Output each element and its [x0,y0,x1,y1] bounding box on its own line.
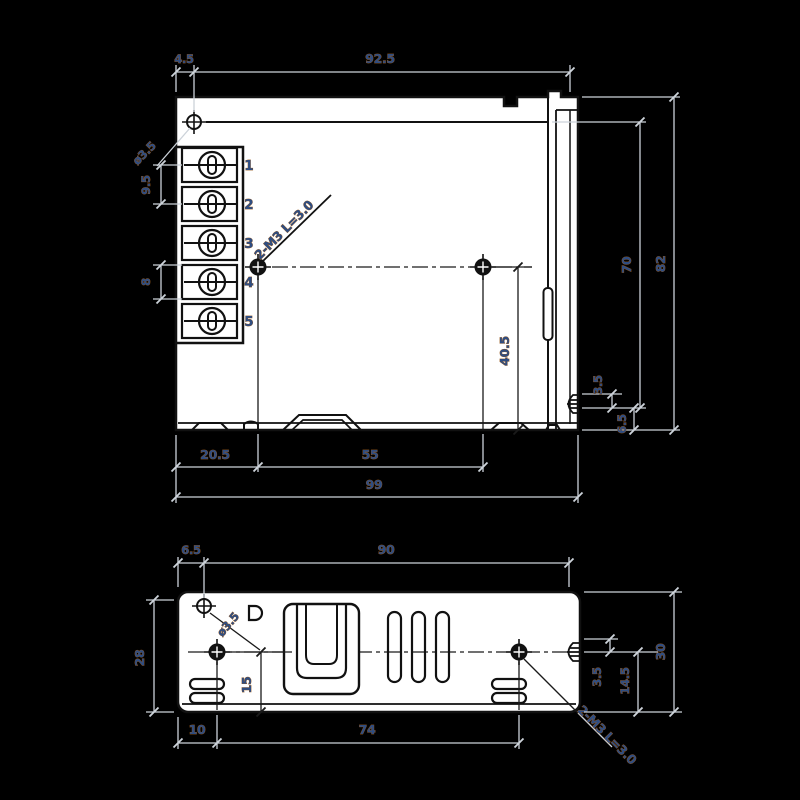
bottom-view: ø3.5 15 2-M3 L=3.0 6.5 90 28 [132,542,682,768]
terminal-4-label: 4 [244,275,253,291]
front-dim-8-label: 8 [139,278,153,286]
front-view: 1 2 3 4 5 2-M3 L=3.0 40.5 4.5 [130,51,680,503]
bottom-dim-15-label: 15 [239,677,254,694]
bottom-dim-14-5-label: 14.5 [618,667,632,694]
technical-drawing: 1 2 3 4 5 2-M3 L=3.0 40.5 4.5 [0,0,800,800]
bottom-dim-bottom: 10 74 [174,715,524,749]
front-dim-9-5-label: 9.5 [139,175,153,195]
bottom-dim-top: 6.5 90 [174,542,574,598]
terminal-block: 1 2 3 4 5 [176,147,254,343]
connector-cutout [284,604,359,694]
front-hole-dia-label: ø3.5 [130,138,159,167]
front-dim-99-label: 99 [366,477,383,492]
terminal-1-label: 1 [244,158,253,174]
bottom-dim-74-label: 74 [359,722,376,737]
front-dim-92-5-label: 92.5 [365,51,395,66]
bottom-dim-left: 28 [132,596,174,717]
bottom-dim-10-label: 10 [189,722,206,737]
front-dim-4-5-label: 4.5 [174,52,194,66]
bottom-dim-30-label: 30 [653,643,668,660]
terminal-2-label: 2 [244,197,253,213]
front-dim-3-5-label: 3.5 [591,375,605,395]
front-dim-82-label: 82 [653,256,668,273]
bottom-dim-right: 3.5 14.5 30 [584,588,682,717]
front-dim-55-label: 55 [362,447,379,462]
front-dim-40-5-label: 40.5 [497,336,512,366]
terminal-5-label: 5 [244,314,253,330]
bottom-dim-28-label: 28 [132,650,147,667]
front-dim-20-5-label: 20.5 [200,447,230,462]
drawing-canvas: 1 2 3 4 5 2-M3 L=3.0 40.5 4.5 [0,0,800,800]
front-dim-6-5-label: 6.5 [615,414,629,434]
bottom-dim-90-label: 90 [378,542,395,557]
bottom-dim-3-5-label: 3.5 [590,667,604,687]
d-hole-icon [249,606,262,620]
bottom-dim-6-5-label: 6.5 [181,543,201,557]
front-dim-bottom: 20.5 55 99 [172,434,583,503]
front-dim-70-label: 70 [619,256,634,273]
